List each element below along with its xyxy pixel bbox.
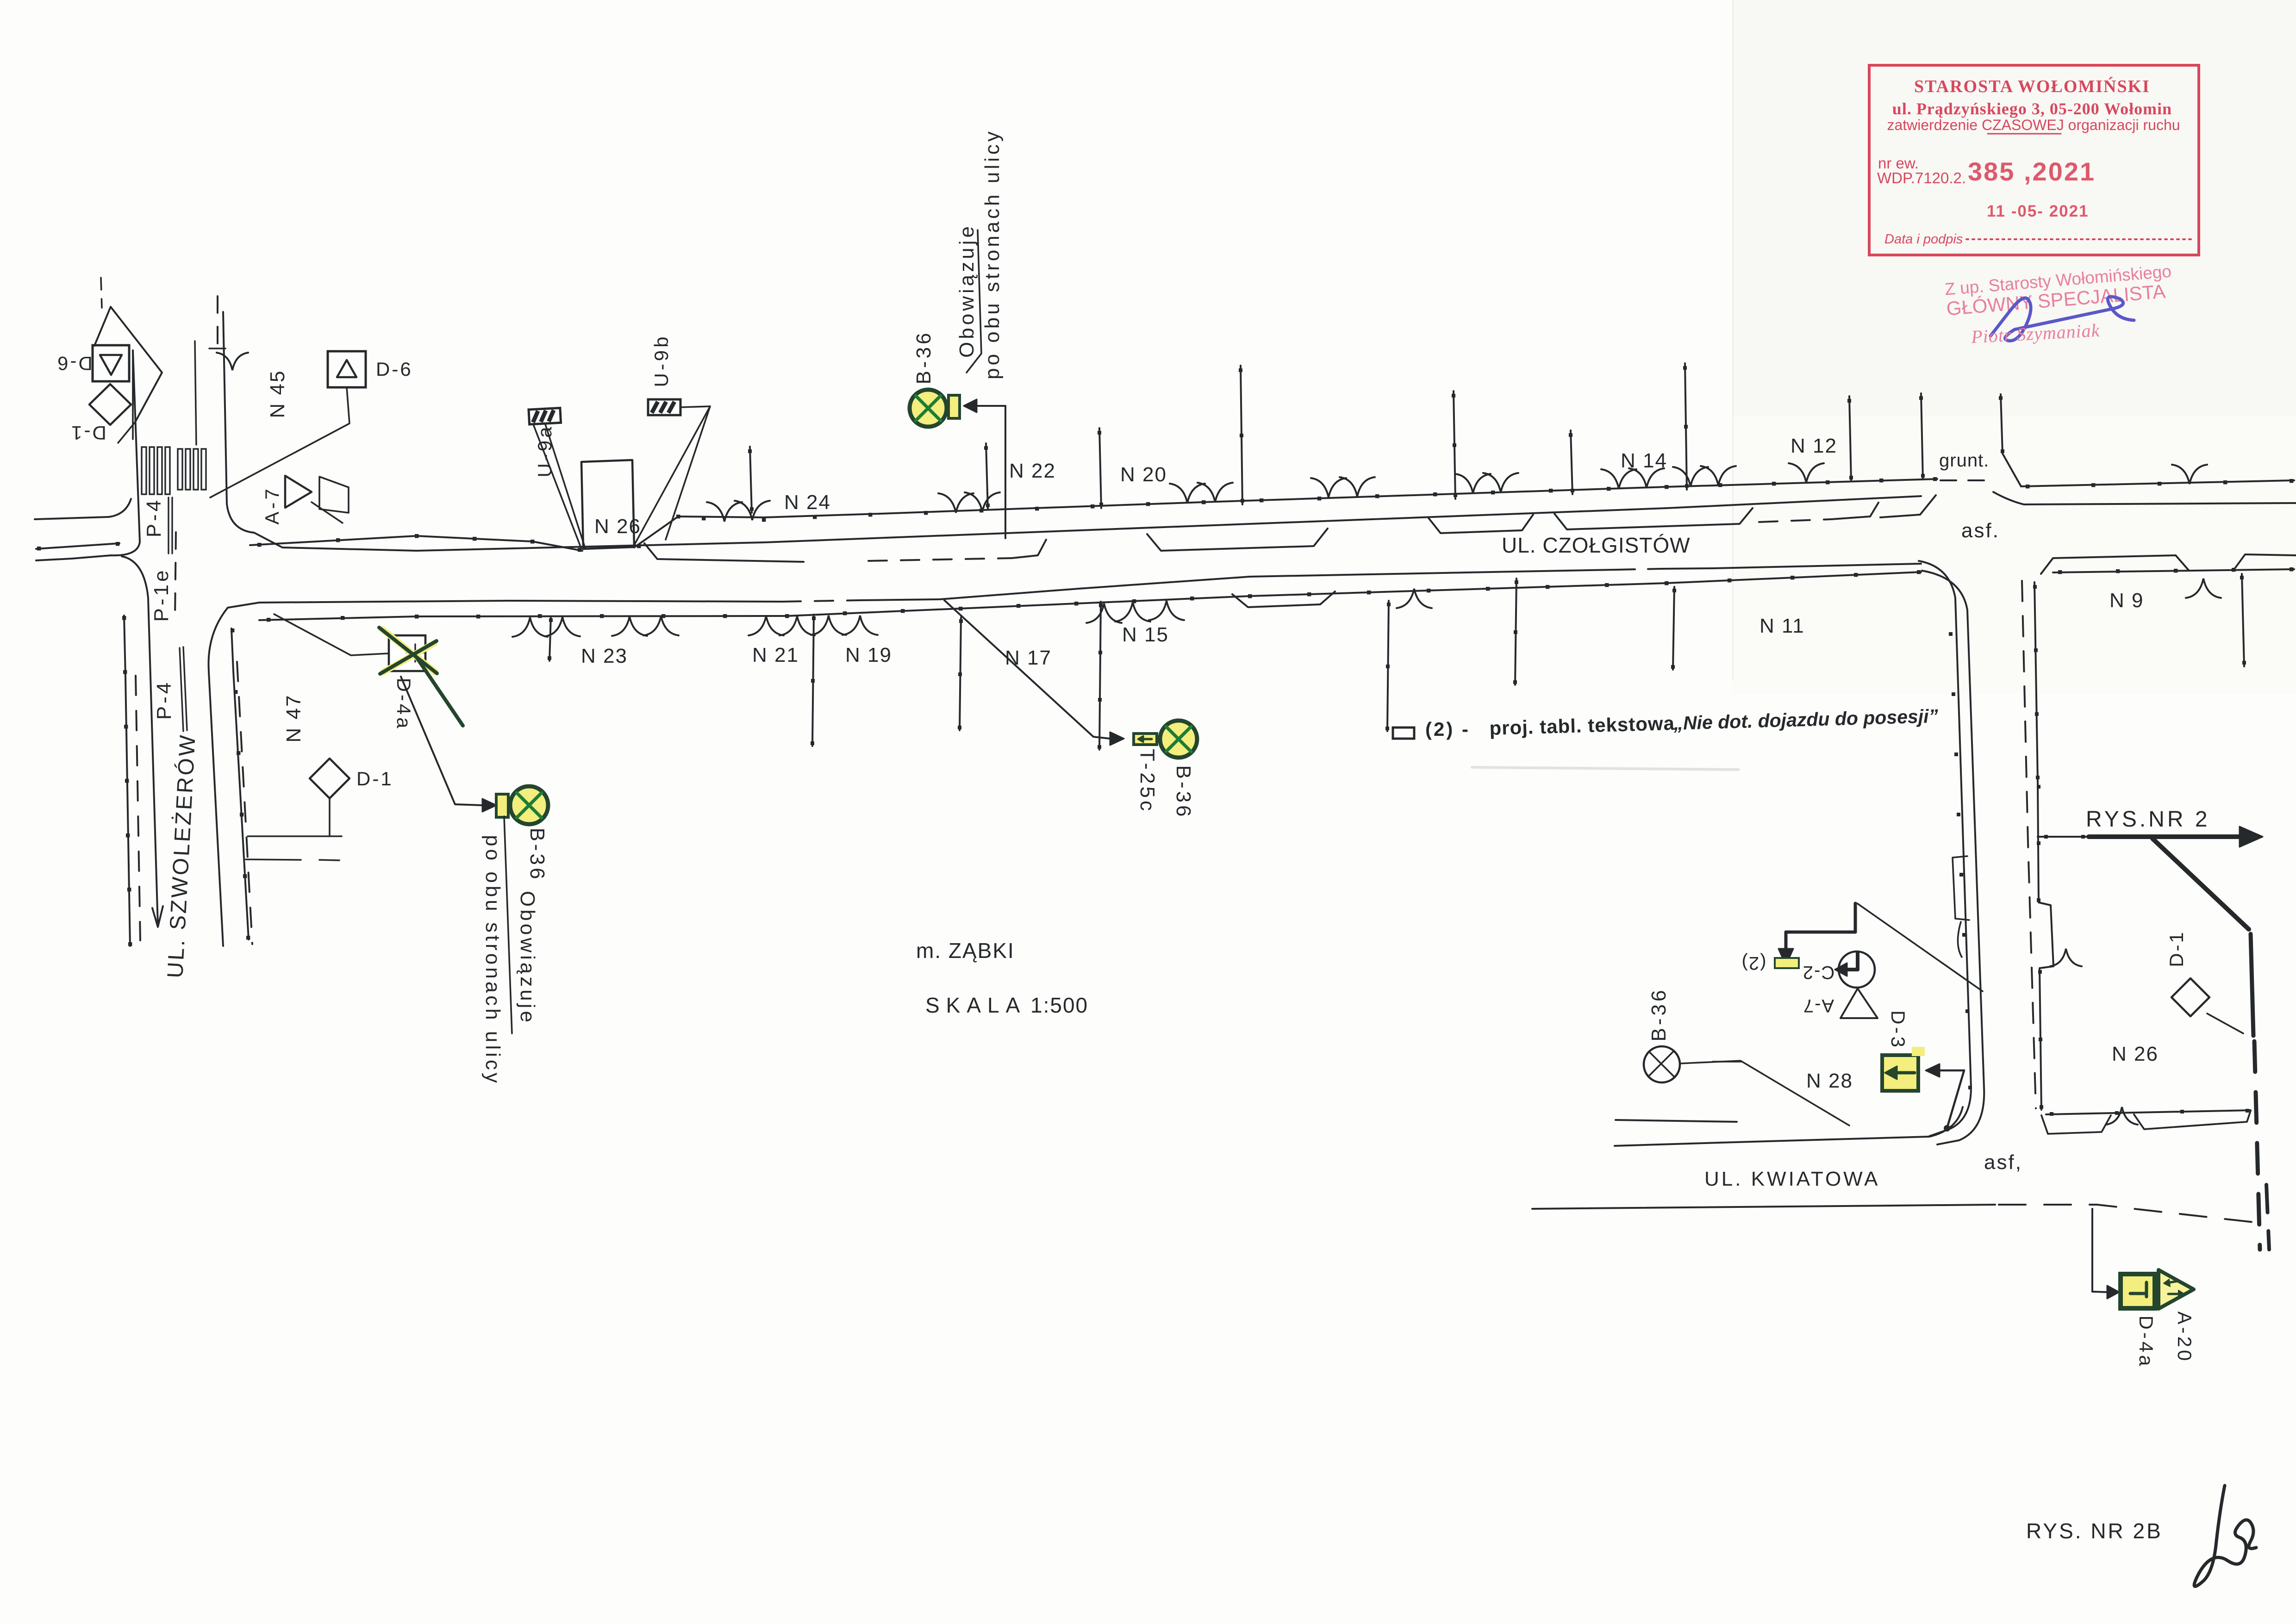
svg-text:D-6: D-6 [56, 353, 93, 374]
svg-text:1:500: 1:500 [1030, 993, 1088, 1017]
svg-text:STAROSTA WOŁOMIŃSKI: STAROSTA WOŁOMIŃSKI [1914, 77, 2150, 96]
svg-text:SKALA: SKALA [925, 993, 1026, 1017]
svg-text:N 26: N 26 [594, 515, 641, 538]
svg-text:Obowiązuje: Obowiązuje [516, 891, 539, 1025]
svg-text:N 12: N 12 [1791, 435, 1837, 457]
svg-text:Obowiązuje: Obowiązuje [955, 224, 978, 358]
svg-text:U-9b: U-9b [650, 334, 672, 387]
svg-text:m. ZĄBKI: m. ZĄBKI [916, 939, 1015, 963]
svg-text:B-36: B-36 [1172, 765, 1195, 820]
svg-text:RYS. NR 2B: RYS. NR 2B [2026, 1519, 2163, 1543]
svg-text:asf,: asf, [1984, 1151, 2022, 1174]
svg-text:(2) -: (2) - [1425, 718, 1470, 740]
svg-text:WDP.7120.2.: WDP.7120.2. [1877, 169, 1966, 187]
svg-text:A-7: A-7 [1803, 995, 1834, 1016]
svg-text:N 45: N 45 [266, 370, 289, 418]
svg-text:N 22: N 22 [1009, 460, 1056, 482]
svg-text:po obu stronach ulicy: po obu stronach ulicy [981, 129, 1004, 379]
svg-text:D-3: D-3 [1887, 1010, 1909, 1050]
svg-text:B-36: B-36 [1647, 988, 1670, 1042]
svg-text:D-1: D-1 [356, 768, 393, 790]
svg-text:11 -05- 2021: 11 -05- 2021 [1987, 202, 2089, 220]
svg-text:N 9: N 9 [2109, 589, 2144, 612]
svg-text:N 11: N 11 [1759, 615, 1805, 637]
svg-text:N 20: N 20 [1120, 463, 1167, 486]
svg-text:T-25c: T-25c [1136, 749, 1159, 814]
svg-text:Data i podpis: Data i podpis [1884, 232, 1963, 247]
svg-text:N 15: N 15 [1122, 623, 1169, 646]
svg-text:D-1: D-1 [69, 422, 106, 444]
svg-text:B-36: B-36 [526, 828, 549, 882]
svg-text:N 14: N 14 [1621, 449, 1667, 472]
svg-text:(2): (2) [1741, 953, 1766, 973]
svg-text:N 17: N 17 [1005, 647, 1052, 669]
svg-text:ul. Prądzyńskiego 3, 05-200 Wo: ul. Prądzyńskiego 3, 05-200 Wołomin [1892, 99, 2172, 118]
svg-text:N 26: N 26 [2112, 1043, 2159, 1065]
svg-text:B-36: B-36 [912, 330, 935, 385]
svg-text:385 ,2021: 385 ,2021 [1968, 157, 2096, 186]
svg-text:UL. CZOŁGISTÓW: UL. CZOŁGISTÓW [1502, 533, 1691, 557]
svg-text:N 47: N 47 [282, 694, 305, 743]
svg-text:N 23: N 23 [581, 645, 628, 667]
svg-text:UL. KWIATOWA: UL. KWIATOWA [1704, 1168, 1880, 1190]
svg-text:A-7: A-7 [261, 486, 283, 524]
svg-text:P-4: P-4 [143, 497, 165, 537]
svg-text:D-6: D-6 [376, 358, 413, 380]
svg-text:C-2: C-2 [1802, 962, 1834, 983]
svg-text:P-1e: P-1e [150, 568, 173, 622]
svg-text:N 28: N 28 [1806, 1070, 1853, 1092]
svg-text:po obu stronach ulicy: po obu stronach ulicy [481, 835, 504, 1086]
svg-text:zatwierdzenie CZASOWEJ organiz: zatwierdzenie CZASOWEJ organizacji ruchu [1887, 117, 2180, 133]
svg-text:D-1: D-1 [2165, 930, 2187, 967]
svg-text:N 24: N 24 [784, 491, 831, 514]
svg-text:P-4: P-4 [153, 680, 175, 720]
svg-text:N 21: N 21 [752, 644, 799, 666]
svg-text:D-4a: D-4a [2135, 1315, 2157, 1368]
svg-text:grunt.: grunt. [1939, 450, 1989, 471]
svg-text:asf.: asf. [1961, 519, 2000, 542]
svg-text:A-20: A-20 [2174, 1312, 2196, 1364]
svg-text:N 19: N 19 [845, 644, 892, 666]
svg-text:RYS.NR 2: RYS.NR 2 [2086, 807, 2210, 832]
